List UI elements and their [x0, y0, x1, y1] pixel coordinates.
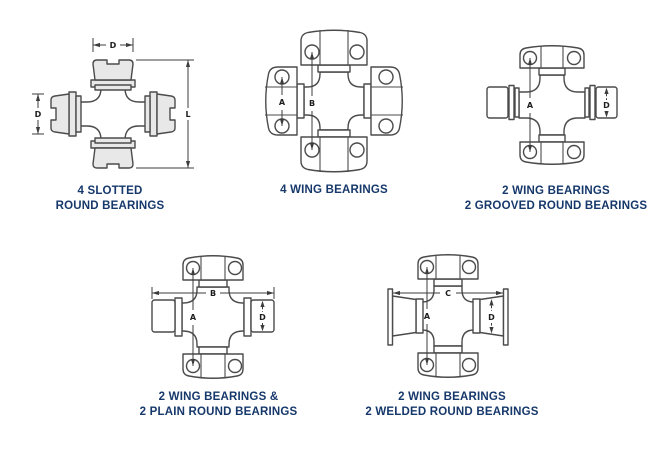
- wing-bearing-bottom: [301, 137, 367, 172]
- figure-caption: 2 WING BEARINGS 2 WELDED ROUND BEARINGS: [365, 390, 538, 420]
- wing-bearing-top: [183, 256, 243, 280]
- dimension-d-top: D: [93, 38, 133, 52]
- dim-label-d: D: [603, 101, 610, 110]
- figure-4-slotted-round-bearings: D D L 4 SLOTTED ROU: [13, 22, 213, 214]
- dim-label-a: A: [424, 312, 431, 321]
- bolt-hole: [379, 119, 393, 133]
- dim-label-l: L: [185, 110, 190, 119]
- caption-line: ROUND BEARINGS: [56, 199, 165, 214]
- figure-2-wing-2-welded-round: C A D 2 WING BEARINGS 2 WELDED ROUND BEA…: [348, 232, 548, 420]
- slotted-bearing-bottom: [91, 138, 135, 168]
- dim-label-d: D: [259, 313, 266, 322]
- dimension-a: A: [527, 58, 534, 152]
- plain-round-bearing-left: [152, 300, 175, 332]
- dim-label-a: A: [527, 101, 534, 110]
- dimension-c: C: [393, 289, 503, 298]
- dim-label-b: B: [210, 289, 216, 298]
- dimension-b: B: [309, 52, 315, 150]
- u-joint-diagram-2-wing-2-grooved: A D: [457, 20, 647, 180]
- figure-caption: 2 WING BEARINGS 2 GROOVED ROUND BEARINGS: [465, 184, 647, 214]
- dim-label-a: A: [279, 98, 286, 107]
- figure-caption: 4 SLOTTED ROUND BEARINGS: [56, 184, 165, 214]
- caption-line: 2 PLAIN ROUND BEARINGS: [140, 405, 298, 420]
- u-joint-diagram-2-wing-2-plain: B A D: [113, 232, 313, 388]
- dim-label-b: B: [309, 99, 315, 108]
- dimension-a: A: [190, 268, 197, 366]
- wing-bearing-top: [301, 30, 367, 65]
- slotted-bearing-left: [51, 92, 81, 136]
- caption-line: 2 WING BEARINGS: [365, 390, 538, 405]
- figure-caption: 2 WING BEARINGS & 2 PLAIN ROUND BEARINGS: [140, 390, 298, 420]
- grooved-round-bearing-left: [487, 86, 519, 120]
- bolt-hole: [350, 45, 364, 59]
- caption-line: 2 WING BEARINGS &: [140, 390, 298, 405]
- bolt-hole: [229, 262, 242, 275]
- figure-caption: 4 WING BEARINGS: [280, 183, 388, 198]
- figure-2-wing-2-grooved-round: A D 2 WING BEARINGS 2 GROOVED ROUND BEAR…: [457, 20, 647, 214]
- u-joint-diagram-4-wing: A B: [234, 16, 434, 176]
- dim-label-c: C: [445, 289, 451, 298]
- caption-line: 4 WING BEARINGS: [280, 183, 388, 198]
- grooved-round-bearing-right: [585, 86, 617, 120]
- welded-round-bearing-left: [388, 289, 416, 345]
- slotted-bearing-right: [145, 92, 175, 136]
- dimension-d-left: D: [32, 94, 44, 134]
- u-joint-diagram-2-wing-2-welded: C A D: [348, 232, 548, 388]
- caption-line: 2 GROOVED ROUND BEARINGS: [465, 199, 647, 214]
- caption-line: 2 WING BEARINGS: [465, 184, 647, 199]
- dimension-b: B: [152, 287, 274, 299]
- bolt-hole: [379, 70, 393, 84]
- wing-bearing-right: [371, 67, 403, 135]
- slotted-bearing-top: [91, 60, 135, 90]
- diagram-canvas: D D L 4 SLOTTED ROU: [0, 0, 670, 450]
- weld-flange: [388, 289, 393, 345]
- wing-bearing-bottom: [183, 354, 243, 378]
- weld-flange: [504, 289, 509, 345]
- bolt-hole: [229, 360, 242, 373]
- dim-label-a: A: [190, 313, 197, 322]
- bolt-hole: [350, 143, 364, 157]
- cross-body: [76, 87, 150, 141]
- dim-label-d: D: [488, 313, 495, 322]
- bolt-hole: [463, 359, 476, 372]
- bolt-hole: [568, 52, 581, 65]
- dim-label-d-top: D: [110, 41, 117, 50]
- caption-line: 4 SLOTTED: [56, 184, 165, 199]
- bolt-hole: [463, 261, 476, 274]
- bolt-hole: [568, 146, 581, 159]
- figure-4-wing-bearings: A B 4 WING BEARINGS: [234, 16, 434, 198]
- u-joint-diagram-4-slotted-round: D D L: [13, 22, 213, 184]
- figure-2-wing-2-plain-round: B A D 2 WING BEARINGS & 2 PLAIN ROUND BE…: [113, 232, 313, 420]
- dim-label-d-left: D: [35, 110, 42, 119]
- dimension-a: A: [424, 267, 431, 365]
- caption-line: 2 WELDED ROUND BEARINGS: [365, 405, 538, 420]
